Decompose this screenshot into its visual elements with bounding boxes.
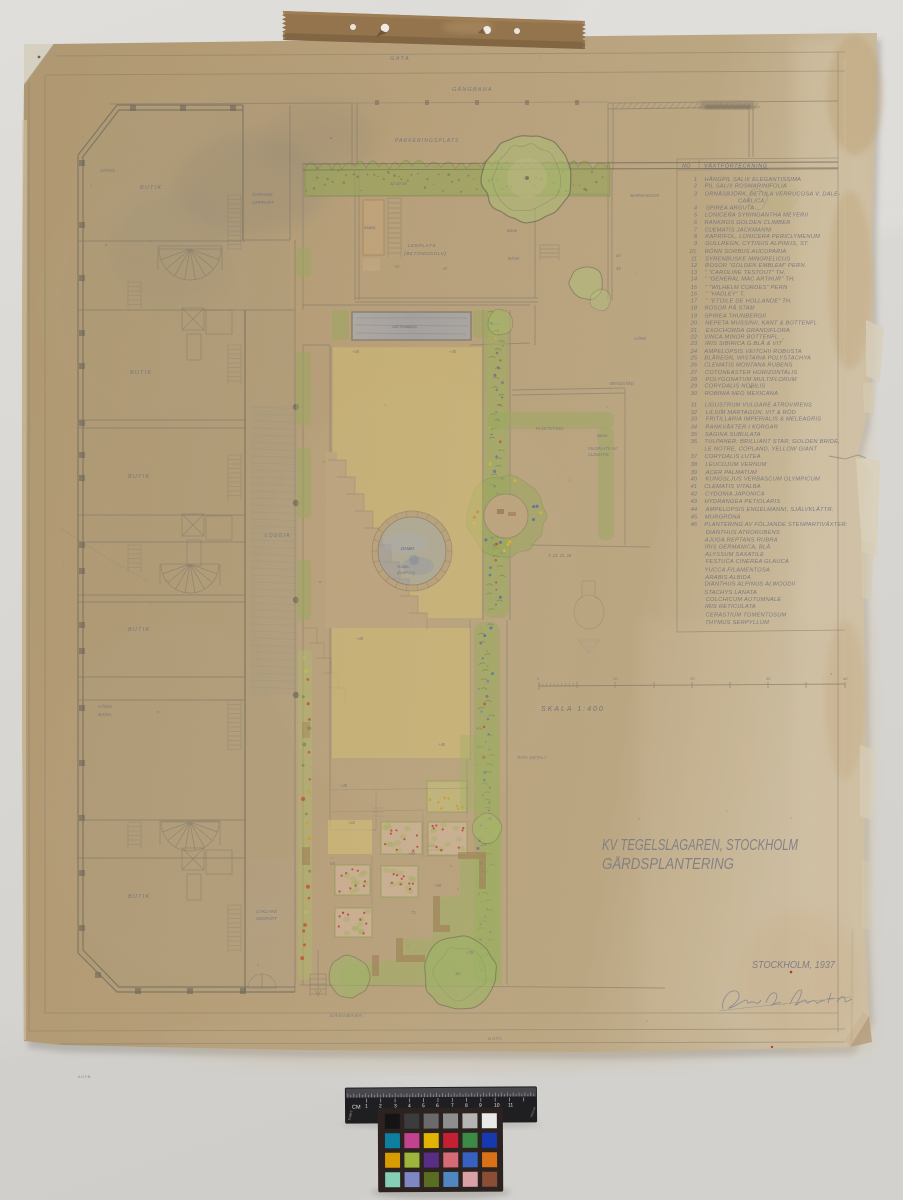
- svg-text:1: 1: [365, 1104, 368, 1110]
- svg-text:11: 11: [508, 1102, 513, 1108]
- svg-text:CM: CM: [352, 1105, 361, 1111]
- svg-text:A.H.F.B.: A.H.F.B.: [77, 1075, 91, 1079]
